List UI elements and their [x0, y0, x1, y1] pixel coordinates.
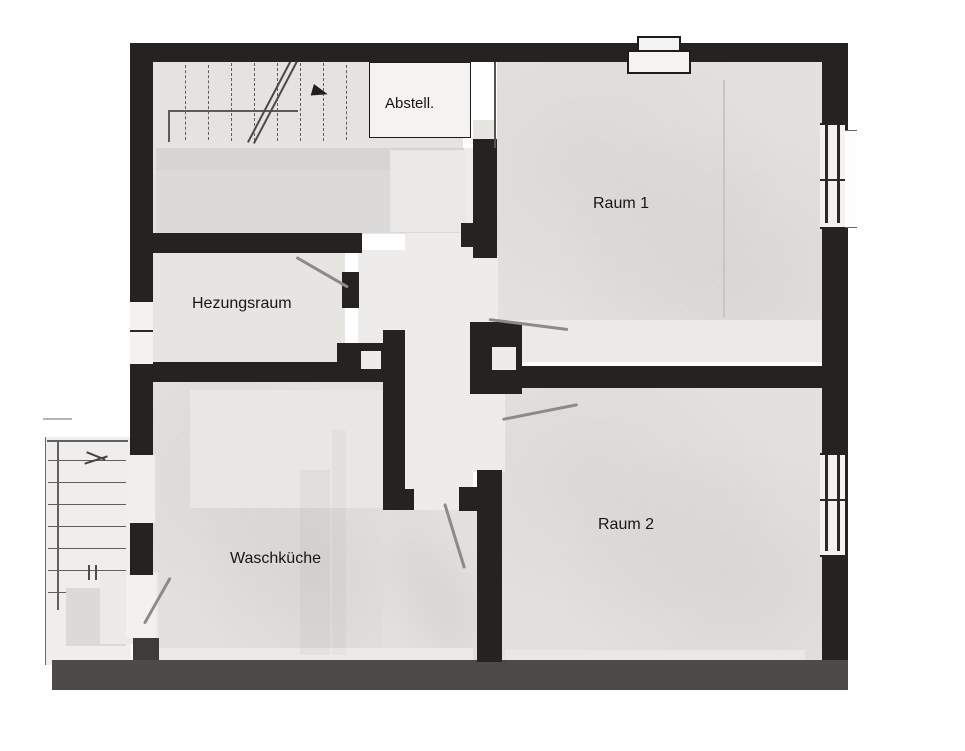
- wall-top: [130, 43, 848, 62]
- door-frame-center: [492, 347, 516, 370]
- wall-left-lower: [130, 523, 153, 575]
- wall-raum2-left: [477, 470, 502, 662]
- room-raum1-fill: [497, 62, 823, 362]
- wall-bottom: [52, 660, 848, 690]
- wall-left-upper: [130, 43, 153, 300]
- wall-hezungsraum-bottom: [130, 362, 383, 382]
- room-hezungsraum-label: Hezungsraum: [192, 295, 292, 313]
- wall-stairroom-bottom: [130, 233, 362, 253]
- waschkueche-streak-2: [332, 430, 346, 655]
- room-raum2-label: Raum 2: [598, 516, 654, 534]
- window-right-upper: [820, 123, 845, 229]
- door-frame-hezungsraum-corner: [361, 351, 381, 369]
- waschkueche-light-patch: [190, 390, 390, 508]
- room-waschkueche-fill-right: [383, 510, 477, 660]
- door-jamb-raum2: [459, 487, 478, 511]
- window-sill-upper: [845, 130, 857, 228]
- door-opening-stairs: [128, 455, 155, 523]
- room-waschkueche-label: Waschküche: [230, 550, 321, 568]
- room-abstell-label: Abstell.: [385, 95, 434, 112]
- floor-plan-image: Abstell. Raum 1 Hezungsraum Waschküche R…: [0, 0, 965, 751]
- raum1-left-edge-line: [494, 62, 496, 148]
- door-area-raum2: [458, 392, 505, 472]
- room-raum1-label: Raum 1: [593, 195, 649, 213]
- door-area-raum1: [468, 256, 498, 324]
- door-jamb-corridor: [405, 489, 414, 510]
- wall-mid-horizontal: [516, 366, 848, 388]
- raum2-bottom-strip: [505, 650, 805, 660]
- room-raum2-fill: [502, 388, 823, 660]
- wall-raum1-left-stub: [461, 223, 474, 247]
- window-right-lower: [820, 453, 845, 557]
- window-left: [130, 300, 153, 366]
- chimney-inner: [627, 50, 691, 74]
- wall-corridor-left: [383, 330, 405, 510]
- erased-band-right: [390, 150, 466, 232]
- door-jamb-hezungsraum: [342, 272, 359, 308]
- wall-raum1-left: [473, 139, 497, 258]
- stray-mark: [43, 418, 72, 420]
- raum1-faint-line: [723, 80, 725, 317]
